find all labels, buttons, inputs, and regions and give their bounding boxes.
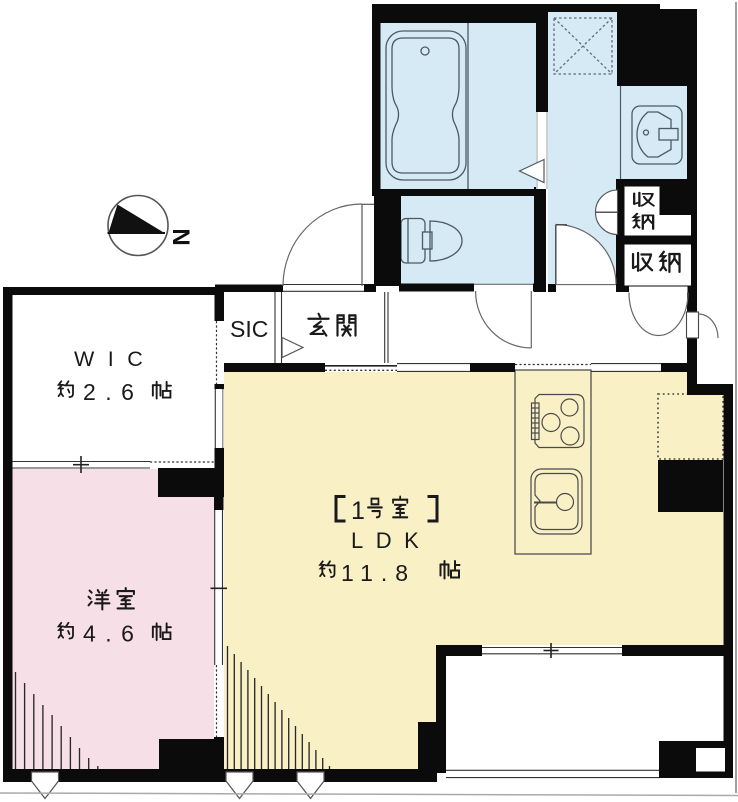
- svg-text:WIC: WIC: [74, 347, 156, 371]
- svg-text:2.6: 2.6: [83, 379, 143, 405]
- svg-text:11.8: 11.8: [341, 560, 416, 586]
- svg-text:SIC: SIC: [230, 316, 268, 342]
- svg-text:N: N: [167, 228, 194, 245]
- svg-text:1: 1: [351, 497, 365, 525]
- svg-text:4.6: 4.6: [83, 621, 143, 647]
- svg-text:LDK: LDK: [351, 528, 431, 553]
